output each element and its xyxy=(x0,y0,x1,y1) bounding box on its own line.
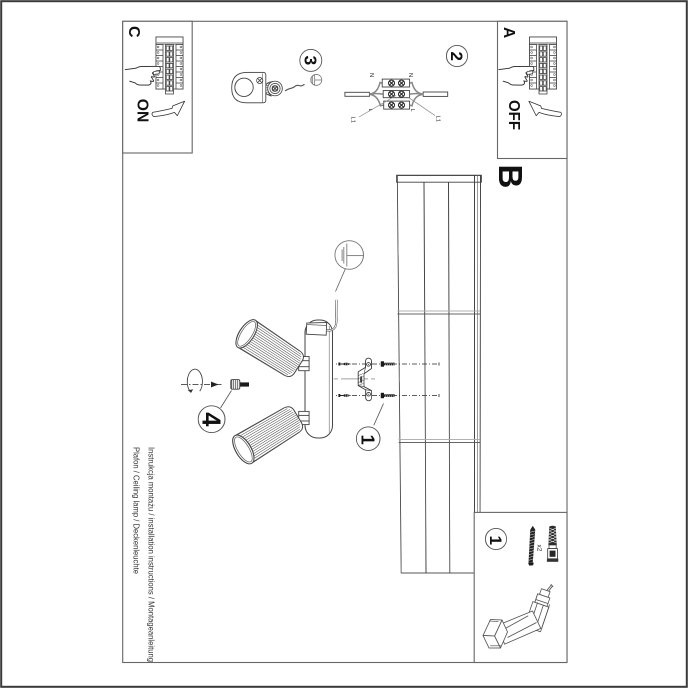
svg-text:1: 1 xyxy=(486,536,505,545)
svg-text:ON: ON xyxy=(134,99,151,123)
svg-text:B: B xyxy=(492,165,529,189)
svg-text:OFF: OFF xyxy=(505,100,522,130)
svg-text:1: 1 xyxy=(358,435,379,445)
svg-text:3: 3 xyxy=(301,56,321,66)
svg-text:L: L xyxy=(409,109,415,113)
svg-text:N: N xyxy=(407,73,413,77)
svg-text:L1: L1 xyxy=(350,117,356,123)
svg-text:Instrukcja montażu / installat: Instrukcja montażu / installation instru… xyxy=(147,447,157,662)
svg-text:Plafon / Ceiling lamp / Decken: Plafon / Ceiling lamp / Deckenleuchte xyxy=(132,447,142,574)
svg-text:A: A xyxy=(500,27,517,38)
svg-text:C: C xyxy=(125,26,142,38)
svg-text:4: 4 xyxy=(196,412,224,427)
svg-text:N: N xyxy=(368,73,374,77)
svg-text:L1: L1 xyxy=(435,116,441,122)
svg-text:x2: x2 xyxy=(536,545,543,552)
svg-text:2: 2 xyxy=(447,52,466,61)
